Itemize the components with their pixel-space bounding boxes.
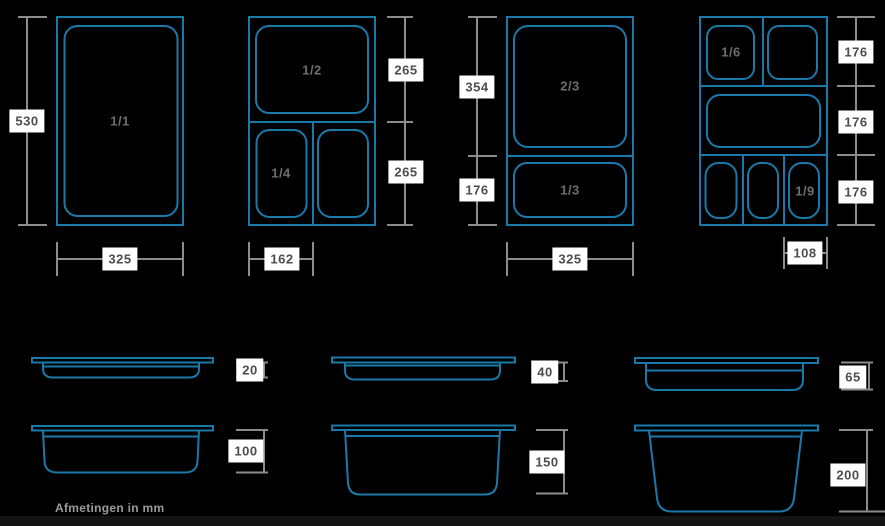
side-view-depth-40 <box>332 358 515 380</box>
dim-depth-200: 200 <box>830 464 865 487</box>
dim-depth-20: 20 <box>236 359 263 382</box>
side-view-depth-150 <box>332 426 515 495</box>
dim-height-176-r2: 176 <box>838 111 873 134</box>
gastronorm-size-diagram: 1/1 1/2 1/4 2/3 1/3 1/6 1/9 530 325 265 … <box>0 0 885 526</box>
pan-label-1-4: 1/4 <box>271 167 291 180</box>
pan-label-1-1: 1/1 <box>110 115 130 128</box>
pan-label-1-9: 1/9 <box>795 185 815 198</box>
dim-width-325-g3: 325 <box>552 248 587 271</box>
dim-height-265-top: 265 <box>388 59 423 82</box>
dim-height-176-g3: 176 <box>459 179 494 202</box>
dim-height-354: 354 <box>459 76 494 99</box>
gn-1-2-1-4-top-view <box>249 17 375 225</box>
side-view-depth-100 <box>32 426 213 473</box>
side-view-depth-65 <box>635 358 818 390</box>
dim-height-176-r3: 176 <box>838 181 873 204</box>
dim-width-162: 162 <box>264 248 299 271</box>
dim-depth-150: 150 <box>529 451 564 474</box>
dim-depth-40: 40 <box>531 361 558 384</box>
dim-height-265-bottom: 265 <box>388 161 423 184</box>
dim-height-176-r1: 176 <box>838 41 873 64</box>
dim-depth-65: 65 <box>839 366 866 389</box>
pan-label-1-6: 1/6 <box>721 46 741 59</box>
pan-label-2-3: 2/3 <box>560 80 580 93</box>
footer-bar <box>0 516 885 526</box>
pan-label-1-3: 1/3 <box>560 184 580 197</box>
side-view-depth-200 <box>635 426 818 512</box>
dim-width-108: 108 <box>787 242 822 265</box>
pan-label-1-2: 1/2 <box>302 64 322 77</box>
dim-depth-100: 100 <box>228 440 263 463</box>
dim-width-325-g1: 325 <box>102 248 137 271</box>
dimensions-note: Afmetingen in mm <box>55 501 164 515</box>
side-view-depth-20 <box>32 358 213 378</box>
dim-height-530: 530 <box>9 110 44 133</box>
